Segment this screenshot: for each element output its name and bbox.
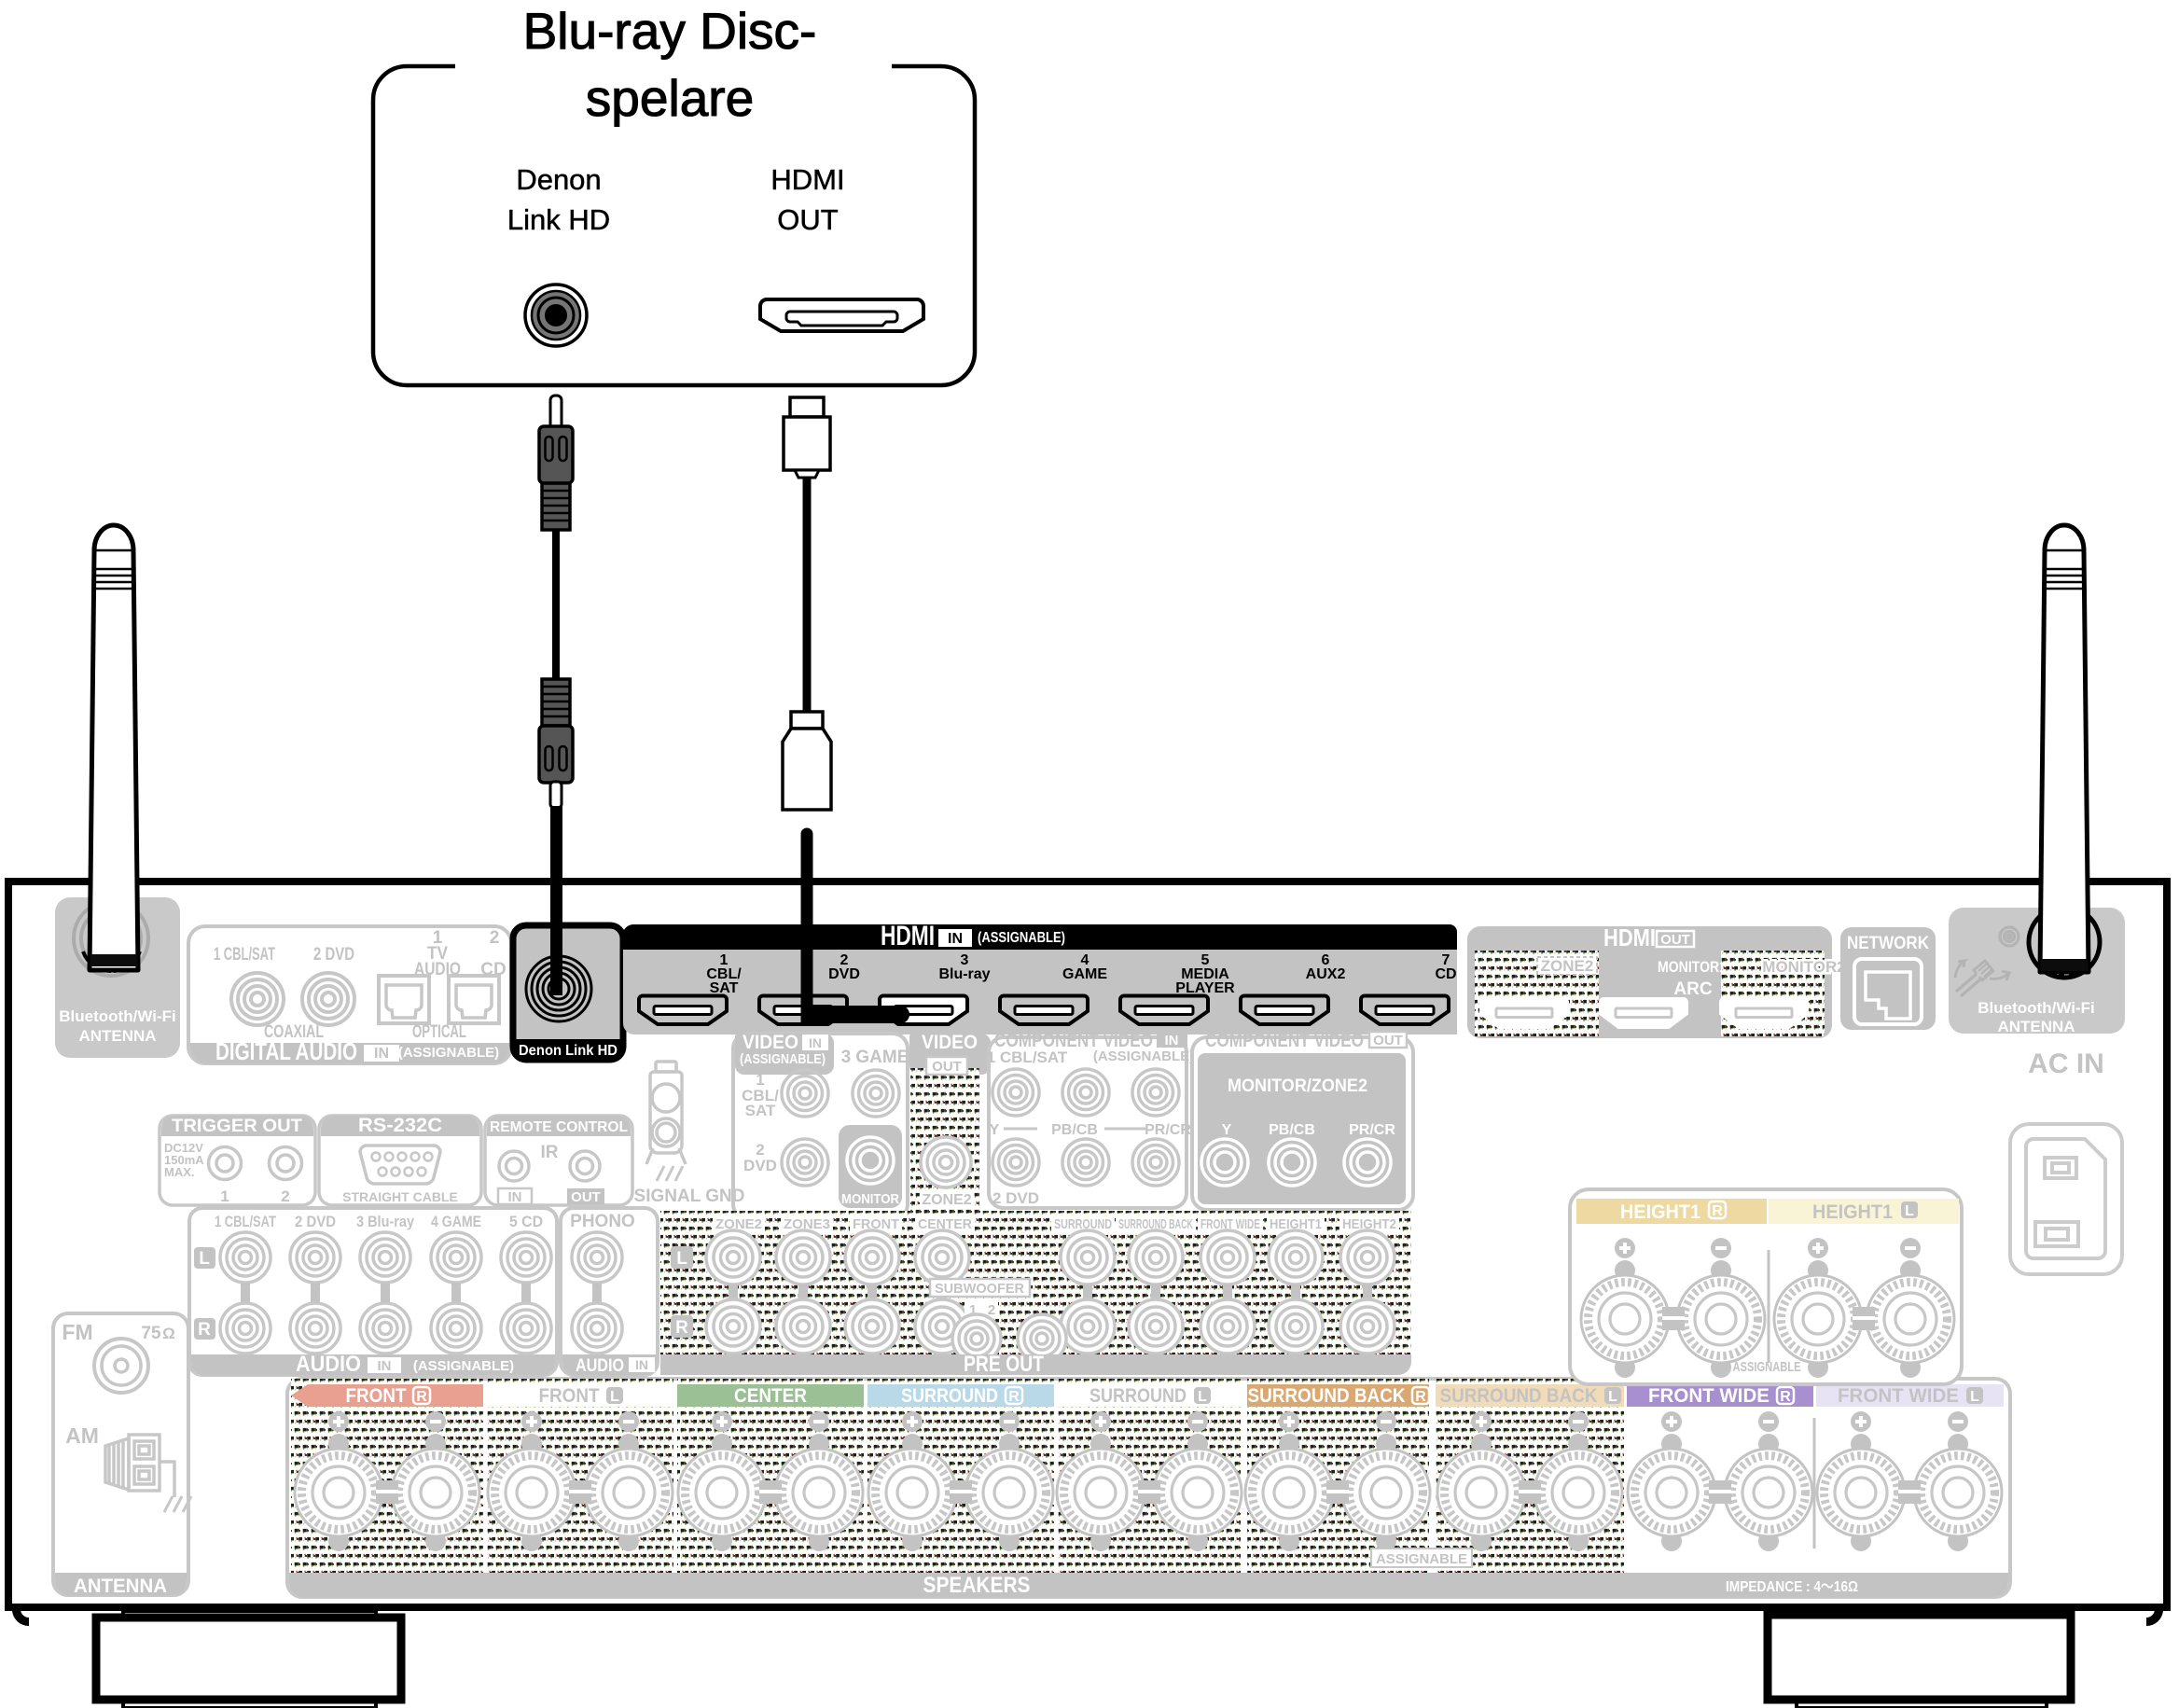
svg-text:HDMI: HDMI — [881, 921, 935, 951]
svg-text:2: 2 — [988, 1302, 995, 1318]
svg-text:IR: IR — [541, 1143, 559, 1162]
svg-text:4 GAME: 4 GAME — [431, 1213, 481, 1230]
svg-text:L: L — [1608, 1389, 1617, 1405]
svg-text:1 CBL/SAT: 1 CBL/SAT — [987, 1048, 1068, 1066]
svg-text:(ASSIGNABLE): (ASSIGNABLE) — [398, 1045, 499, 1061]
svg-text:PLAYER: PLAYER — [1175, 980, 1235, 996]
svg-text:DVD: DVD — [743, 1157, 777, 1174]
svg-text:(ASSIGNABLE): (ASSIGNABLE) — [1093, 1048, 1194, 1064]
svg-text:Bluetooth/Wi-Fi: Bluetooth/Wi-Fi — [1978, 999, 2094, 1017]
svg-text:OUT: OUT — [777, 203, 839, 236]
svg-text:AUX2: AUX2 — [1306, 966, 1346, 982]
svg-text:GAME: GAME — [1062, 966, 1107, 982]
svg-text:Ω: Ω — [162, 1325, 175, 1342]
svg-text:1: 1 — [220, 1187, 229, 1205]
svg-text:RS-232C: RS-232C — [358, 1115, 442, 1136]
svg-text:3 GAME: 3 GAME — [841, 1048, 909, 1067]
svg-text:ANTENNA: ANTENNA — [74, 1576, 167, 1597]
svg-text:R: R — [1415, 1389, 1426, 1405]
svg-text:ASSIGNABLE: ASSIGNABLE — [1376, 1551, 1467, 1567]
svg-text:L: L — [676, 1249, 687, 1269]
svg-text:AM: AM — [65, 1423, 99, 1448]
svg-text:PHONO: PHONO — [570, 1212, 635, 1231]
svg-text:STRAIGHT CABLE: STRAIGHT CABLE — [342, 1189, 458, 1204]
svg-text:VIDEO: VIDEO — [743, 1032, 798, 1053]
svg-text:R: R — [416, 1389, 427, 1405]
svg-text:2 DVD: 2 DVD — [313, 945, 354, 965]
svg-text:L: L — [610, 1389, 619, 1405]
svg-text:MONITOR: MONITOR — [841, 1191, 899, 1207]
svg-text:TRIGGER OUT: TRIGGER OUT — [172, 1117, 302, 1136]
svg-text:1 CBL/SAT: 1 CBL/SAT — [215, 1213, 276, 1230]
svg-text:FRONT WIDE: FRONT WIDE — [1838, 1385, 1959, 1407]
svg-text:SPEAKERS: SPEAKERS — [923, 1573, 1031, 1598]
svg-text:MONITOR2: MONITOR2 — [1762, 958, 1845, 976]
svg-text:2: 2 — [490, 928, 500, 948]
svg-text:R: R — [1780, 1389, 1791, 1405]
svg-text:MONITOR/ZONE2: MONITOR/ZONE2 — [1228, 1076, 1367, 1096]
svg-text:Bluetooth/Wi-Fi: Bluetooth/Wi-Fi — [59, 1007, 175, 1025]
svg-text:spelare: spelare — [586, 69, 754, 127]
svg-text:IN: IN — [374, 1046, 389, 1062]
svg-text:ZONE2: ZONE2 — [1541, 957, 1594, 975]
svg-text:FRONT: FRONT — [539, 1385, 600, 1407]
svg-text:L: L — [1905, 1203, 1914, 1219]
svg-text:R: R — [1712, 1203, 1723, 1219]
svg-text:1 CBL/SAT: 1 CBL/SAT — [214, 945, 275, 965]
svg-text:FM: FM — [62, 1320, 92, 1344]
svg-text:COAXIAL: COAXIAL — [264, 1022, 324, 1042]
svg-text:Denon: Denon — [516, 163, 601, 196]
svg-text:VIDEO: VIDEO — [922, 1032, 978, 1053]
svg-text:AUDIO: AUDIO — [576, 1356, 624, 1376]
svg-text:IN: IN — [1165, 1033, 1179, 1048]
svg-text:SURROUND BACK: SURROUND BACK — [1248, 1385, 1406, 1407]
svg-text:OUT: OUT — [1660, 932, 1690, 948]
svg-text:2 DVD: 2 DVD — [295, 1213, 336, 1230]
svg-text:COMPONENT VIDEO: COMPONENT VIDEO — [1205, 1030, 1364, 1051]
svg-text:ANTENNA: ANTENNA — [78, 1027, 156, 1045]
svg-text:CENTER: CENTER — [734, 1385, 807, 1407]
svg-text:(ASSIGNABLE): (ASSIGNABLE) — [413, 1358, 514, 1374]
svg-text:ANTENNA: ANTENNA — [1997, 1018, 2075, 1035]
svg-text:DVD: DVD — [828, 966, 860, 982]
svg-text:MAX.: MAX. — [164, 1165, 195, 1179]
svg-text:CD: CD — [1435, 966, 1456, 982]
svg-text:NETWORK: NETWORK — [1847, 934, 1929, 953]
svg-text:ASSIGNABLE: ASSIGNABLE — [1733, 1359, 1801, 1375]
svg-text:REMOTE CONTROL: REMOTE CONTROL — [490, 1119, 628, 1135]
svg-text:IMPEDANCE : 4〜16Ω: IMPEDANCE : 4〜16Ω — [1726, 1579, 1858, 1595]
svg-text:IN: IN — [508, 1189, 522, 1205]
svg-text:Link HD: Link HD — [507, 203, 610, 236]
svg-text:Y: Y — [1222, 1122, 1232, 1138]
svg-text:FRONT WIDE: FRONT WIDE — [1648, 1385, 1770, 1407]
svg-text:AC IN: AC IN — [2028, 1048, 2104, 1079]
svg-text:Denon Link HD: Denon Link HD — [519, 1043, 618, 1059]
svg-text:L: L — [1198, 1389, 1207, 1405]
svg-text:PB/CB: PB/CB — [1051, 1122, 1098, 1138]
svg-text:R: R — [675, 1318, 688, 1338]
svg-text:SIGNAL GND: SIGNAL GND — [634, 1187, 745, 1206]
svg-text:PRE OUT: PRE OUT — [964, 1352, 1044, 1377]
svg-text:IN: IN — [948, 931, 963, 947]
svg-text:Y: Y — [990, 1122, 1000, 1138]
svg-text:ARC: ARC — [1673, 979, 1712, 999]
svg-text:SAT: SAT — [745, 1102, 776, 1119]
svg-text:PB/CB: PB/CB — [1269, 1122, 1315, 1138]
svg-text:OUT: OUT — [932, 1059, 962, 1075]
svg-text:AUDIO: AUDIO — [296, 1352, 361, 1377]
svg-text:SAT: SAT — [710, 980, 739, 996]
svg-text:75: 75 — [141, 1324, 161, 1343]
svg-text:SURROUND: SURROUND — [1089, 1385, 1187, 1407]
svg-text:2: 2 — [281, 1187, 289, 1205]
svg-text:L: L — [199, 1249, 210, 1269]
svg-text:SURROUND: SURROUND — [901, 1385, 998, 1407]
svg-text:IN: IN — [635, 1357, 648, 1372]
svg-text:IN: IN — [378, 1358, 392, 1374]
svg-text:SUBWOOFER: SUBWOOFER — [935, 1281, 1024, 1297]
svg-text:SURROUND BACK: SURROUND BACK — [1440, 1385, 1598, 1407]
svg-text:5 CD: 5 CD — [509, 1213, 543, 1230]
svg-text:HEIGHT1: HEIGHT1 — [1620, 1201, 1700, 1223]
svg-text:OPTICAL: OPTICAL — [412, 1022, 466, 1042]
svg-text:MONITOR1: MONITOR1 — [1658, 958, 1727, 976]
svg-text:IN: IN — [809, 1035, 822, 1050]
svg-text:HEIGHT1: HEIGHT1 — [1812, 1201, 1893, 1223]
svg-text:R: R — [1008, 1389, 1020, 1405]
svg-text:HDMI: HDMI — [1603, 923, 1656, 951]
svg-text:HDMI: HDMI — [770, 163, 844, 196]
svg-text:OUT: OUT — [571, 1189, 601, 1205]
svg-text:PR/CR: PR/CR — [1349, 1122, 1395, 1138]
svg-text:Blu-ray Disc-: Blu-ray Disc- — [523, 2, 817, 60]
svg-text:OUT: OUT — [1373, 1033, 1403, 1048]
svg-text:PR/CR: PR/CR — [1145, 1122, 1191, 1138]
svg-text:FRONT: FRONT — [346, 1385, 407, 1407]
svg-text:(ASSIGNABLE): (ASSIGNABLE) — [978, 930, 1065, 946]
svg-text:Blu-ray: Blu-ray — [938, 966, 990, 982]
svg-text:ZONE2: ZONE2 — [922, 1192, 971, 1208]
svg-text:2 DVD: 2 DVD — [992, 1189, 1039, 1207]
svg-text:L: L — [1970, 1389, 1979, 1405]
svg-text:(ASSIGNABLE): (ASSIGNABLE) — [740, 1051, 826, 1067]
svg-text:3 Blu-ray: 3 Blu-ray — [356, 1213, 414, 1230]
svg-text:R: R — [198, 1320, 211, 1340]
